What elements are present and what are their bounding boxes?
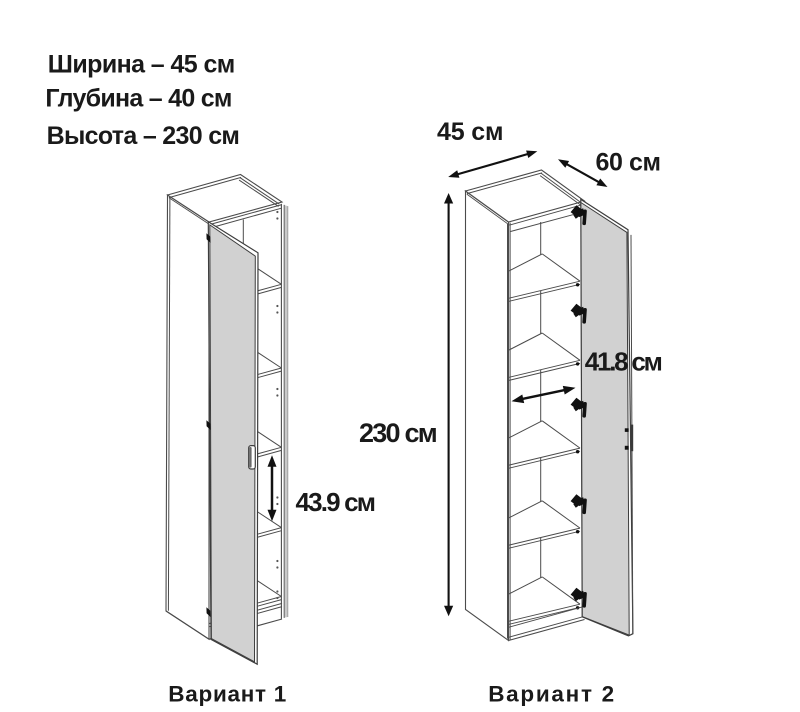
svg-text:230 см: 230 см (359, 418, 438, 448)
svg-text:Ширина – 45 см: Ширина – 45 см (48, 50, 236, 78)
svg-text:Вариант 1: Вариант 1 (168, 681, 286, 706)
svg-text:Вариант 2: Вариант 2 (488, 682, 614, 707)
svg-text:Глубина – 40 см: Глубина – 40 см (45, 85, 232, 113)
svg-text:Высота – 230 см: Высота – 230 см (47, 122, 240, 150)
svg-text:45 см: 45 см (437, 118, 504, 146)
svg-text:60 см: 60 см (596, 149, 662, 177)
svg-text:41.8 см: 41.8 см (585, 346, 663, 376)
svg-text:43.9 см: 43.9 см (296, 487, 377, 517)
